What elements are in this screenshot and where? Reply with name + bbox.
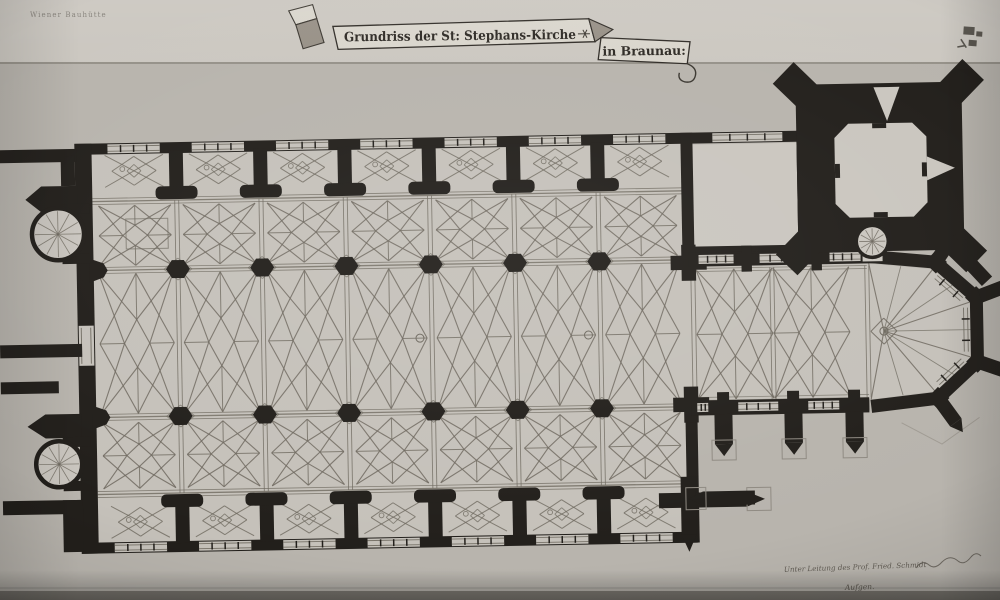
drawing-location: in Braunau: [602,43,686,59]
drawing-title: Grundriss der St: Stephans-Kirche [344,28,576,45]
photo-bottom-edge [0,591,1000,600]
stamp-top-left: Wiener Bauhütte [30,11,107,19]
tower [783,69,987,285]
credit-handwriting-2: Aufgen. [844,582,875,592]
photograph-of-architectural-drawing: Grundriss der St: Stephans-Kirche in Bra… [0,0,1000,600]
